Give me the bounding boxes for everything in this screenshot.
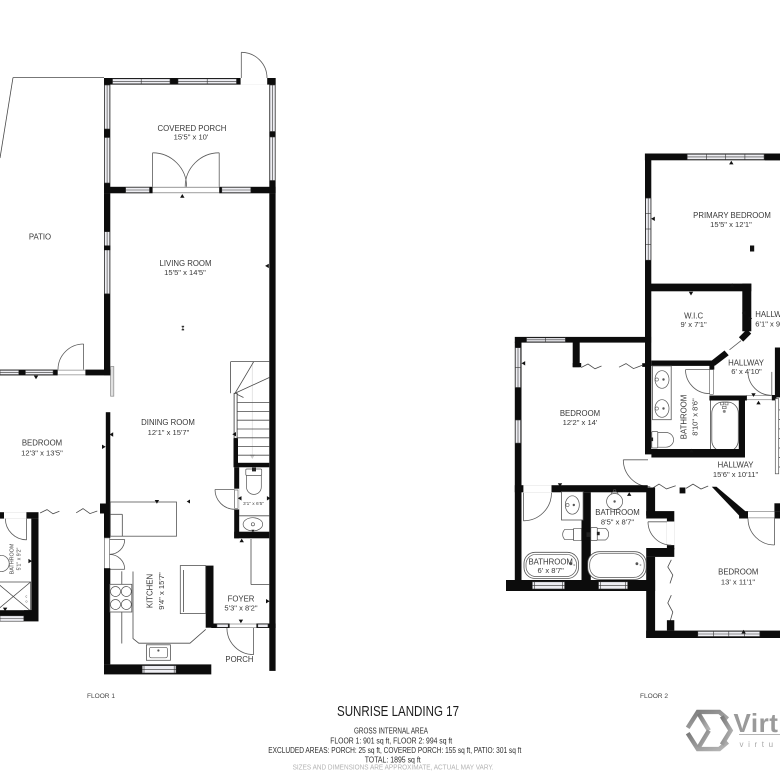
svg-text:6' x 4'10": 6' x 4'10" (731, 367, 762, 376)
svg-text:EXCLUDED AREAS: PORCH: 25 sq f: EXCLUDED AREAS: PORCH: 25 sq ft, COVERED… (268, 746, 522, 755)
svg-text:FLOOR 2: FLOOR 2 (640, 693, 668, 700)
svg-text:6'1" x 9: 6'1" x 9 (755, 320, 780, 329)
svg-text:FLOOR 1: FLOOR 1 (87, 693, 115, 700)
svg-text:W.I.C: W.I.C (684, 311, 703, 320)
svg-text:15'5" x 14'5": 15'5" x 14'5" (164, 268, 206, 277)
svg-text:5'3" x 8'2": 5'3" x 8'2" (224, 603, 258, 612)
svg-text:c: c (574, 563, 576, 567)
svg-text:15'5" x 12'1": 15'5" x 12'1" (710, 220, 752, 229)
svg-text:8'5" x 8'7": 8'5" x 8'7" (601, 518, 635, 527)
svg-text:LIVING ROOM: LIVING ROOM (160, 259, 212, 268)
svg-text:9' x 7'1": 9' x 7'1" (680, 320, 707, 329)
svg-text:BEDROOM: BEDROOM (560, 409, 600, 418)
svg-text:c: c (26, 595, 28, 599)
svg-text:PORCH: PORCH (225, 655, 253, 664)
svg-text:FOYER: FOYER (228, 595, 255, 604)
svg-text:8'10" x 8'6": 8'10" x 8'6" (691, 398, 700, 436)
svg-text:HALLWAY: HALLWAY (755, 310, 780, 319)
svg-text:KITCHEN: KITCHEN (146, 574, 155, 608)
svg-text:virtu: virtu (740, 740, 778, 749)
svg-text:BATHROOM: BATHROOM (595, 508, 639, 517)
svg-text:12'2" x 14': 12'2" x 14' (563, 418, 598, 427)
svg-text:BEDROOM: BEDROOM (22, 439, 62, 448)
svg-text:FLOOR 1: 901 sq ft, FLOOR 2: 9: FLOOR 1: 901 sq ft, FLOOR 2: 994 sq ft (330, 736, 453, 745)
svg-text:GROSS INTERNAL AREA: GROSS INTERNAL AREA (354, 727, 429, 736)
svg-text:15'6" x 10'11": 15'6" x 10'11" (713, 470, 759, 479)
svg-text:BATHROOM: BATHROOM (10, 543, 16, 574)
svg-text:HALLWAY: HALLWAY (718, 460, 755, 469)
svg-text:PATIO: PATIO (29, 233, 51, 242)
svg-text:SUNRISE LANDING 17: SUNRISE LANDING 17 (337, 704, 459, 720)
svg-text:13' x 11'1": 13' x 11'1" (721, 577, 755, 586)
svg-text:SIZES AND DIMENSIONS ARE APPRO: SIZES AND DIMENSIONS ARE APPROXIMATE, AC… (293, 763, 494, 772)
svg-text:PRIMARY BEDROOM: PRIMARY BEDROOM (693, 211, 771, 220)
svg-text:DINING ROOM: DINING ROOM (141, 418, 195, 427)
svg-text:BATHROOM: BATHROOM (680, 395, 689, 439)
svg-text:BEDROOM: BEDROOM (718, 568, 758, 577)
svg-text:5'1" x 9'2": 5'1" x 9'2" (17, 548, 23, 571)
svg-text:Virtu: Virtu (734, 708, 780, 738)
svg-text:o: o (26, 600, 28, 604)
svg-text:c: c (640, 563, 642, 567)
svg-text:HALLWAY: HALLWAY (728, 358, 765, 367)
svg-text:12'3" x 13'5": 12'3" x 13'5" (21, 449, 63, 458)
svg-text:15'5" x 10': 15'5" x 10' (174, 133, 209, 142)
svg-text:3'1" x 6'5": 3'1" x 6'5" (243, 501, 264, 507)
svg-text:9'4" x 15'7": 9'4" x 15'7" (157, 572, 166, 610)
svg-text:BATHROOM: BATHROOM (528, 557, 572, 566)
svg-text:6' x 8'7": 6' x 8'7" (538, 566, 565, 575)
svg-text:12'1" x 15'7": 12'1" x 15'7" (148, 428, 190, 437)
svg-text:COVERED PORCH: COVERED PORCH (158, 124, 227, 133)
